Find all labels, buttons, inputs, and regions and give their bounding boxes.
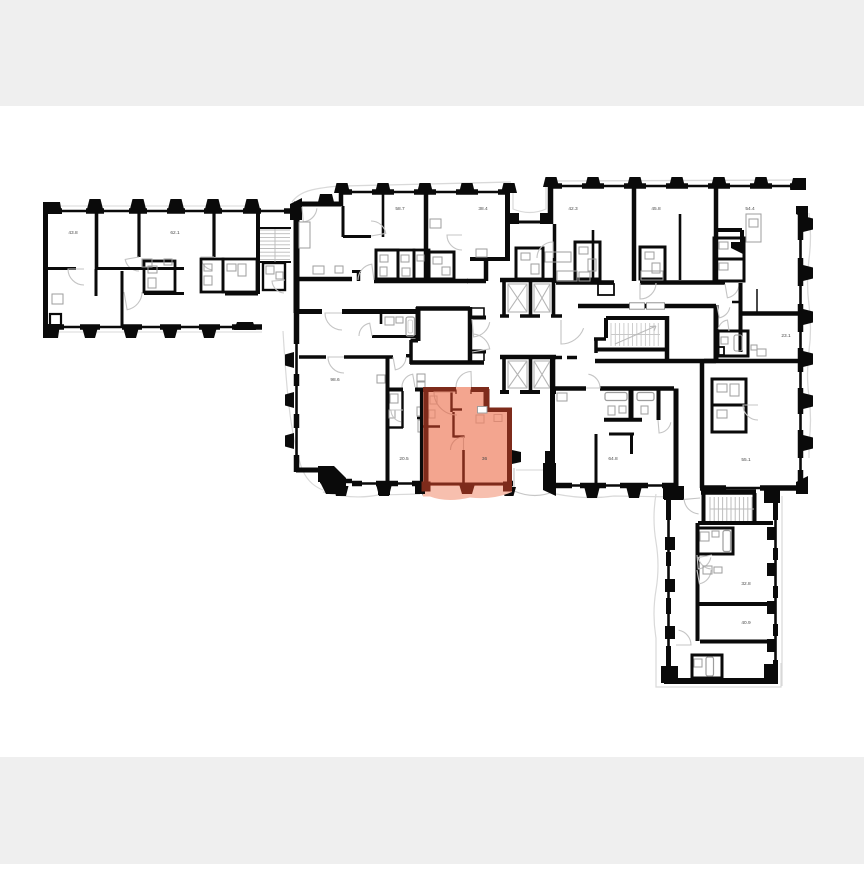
svg-text:40.9: 40.9: [741, 620, 751, 626]
svg-text:58.7: 58.7: [395, 206, 405, 212]
svg-text:32.8: 32.8: [741, 581, 751, 587]
svg-text:45.8: 45.8: [651, 206, 661, 212]
svg-text:36: 36: [482, 456, 488, 462]
svg-text:42.3: 42.3: [568, 206, 578, 212]
svg-text:54.4: 54.4: [745, 206, 755, 212]
svg-text:64.8: 64.8: [608, 456, 618, 462]
svg-text:43.8: 43.8: [68, 230, 78, 236]
svg-text:38.4: 38.4: [478, 206, 488, 212]
svg-text:62.1: 62.1: [170, 230, 180, 236]
svg-text:98.6: 98.6: [330, 377, 340, 383]
svg-text:20.5: 20.5: [399, 456, 409, 462]
svg-text:55.1: 55.1: [741, 457, 751, 463]
svg-text:23.1: 23.1: [781, 333, 791, 339]
